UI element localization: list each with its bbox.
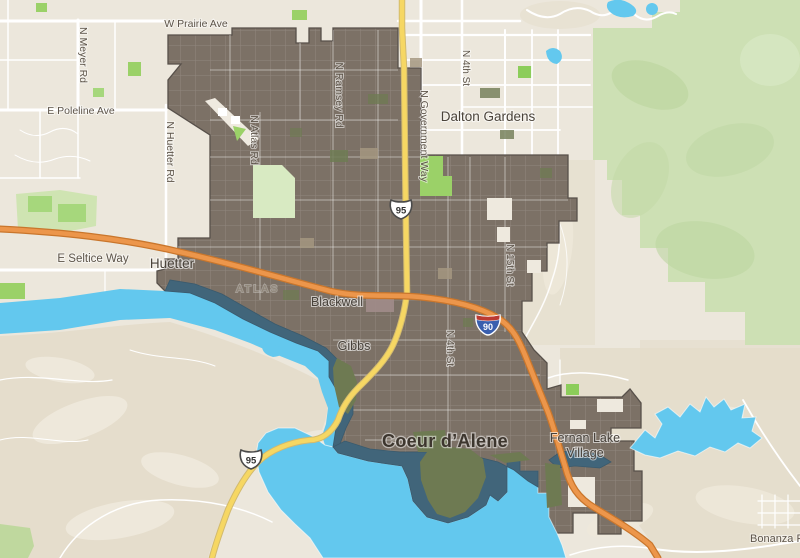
road-label-n-15th-st: N 15th St (504, 244, 515, 286)
road-label-n-ramsey-rd: N Ramsey Rd (333, 62, 345, 128)
us95-shield-number: 95 (396, 206, 407, 217)
neighborhood-label-gibbs: Gibbs (338, 339, 371, 353)
map-viewport: 95 95 90 W Prairie Ave N Meyer Rd E Pole… (0, 0, 800, 558)
town-label-fernan-lake-line2: Village (566, 446, 603, 460)
road-label-n-atlas-rd: N Atlas Rd (248, 115, 260, 165)
road-label-bonanza: Bonanza R (750, 533, 800, 545)
town-label-fernan-lake-line1: Fernan Lake (550, 431, 620, 445)
road-label-e-seltice-way: E Seltice Way (57, 253, 128, 265)
city-label-coeur-dalene: Coeur d’Alene (382, 431, 508, 451)
road-label-n-government-way: N Government Way (418, 90, 430, 183)
map-canvas[interactable]: 95 95 90 W Prairie Ave N Meyer Rd E Pole… (0, 0, 800, 558)
town-label-huetter: Huetter (150, 256, 195, 271)
us95-shield-number-2: 95 (246, 456, 257, 467)
road-label-e-poleline-ave: E Poleline Ave (47, 105, 115, 117)
neighborhood-label-blackwell: Blackwell (311, 295, 363, 309)
road-label-n-meyer-rd: N Meyer Rd (77, 27, 89, 83)
town-label-dalton-gardens: Dalton Gardens (441, 109, 536, 124)
neighborhood-label-atlas: ATLAS (236, 284, 279, 295)
road-label-n-huetter-rd: N Huetter Rd (164, 121, 176, 182)
road-label-n-4th-st-north: N 4th St (460, 50, 471, 86)
i90-shield-number: 90 (483, 322, 493, 332)
road-label-n-4th-st-south: N 4th St (444, 330, 455, 366)
road-label-w-prairie-ave: W Prairie Ave (164, 18, 228, 30)
